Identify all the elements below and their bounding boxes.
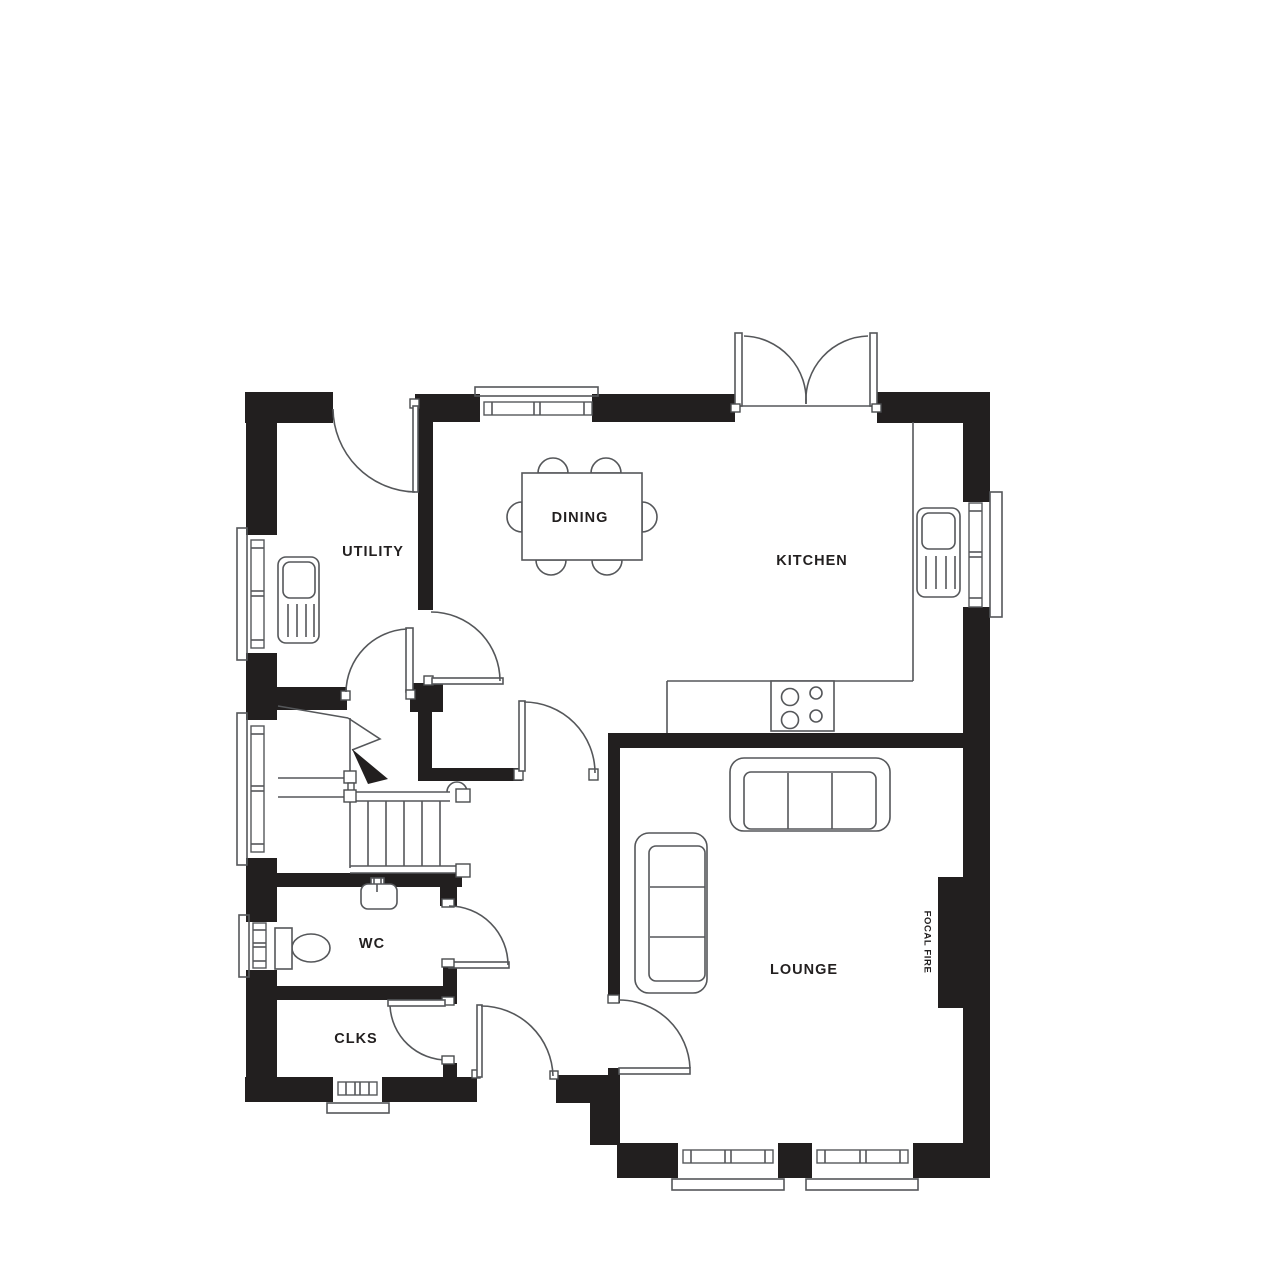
newel-post: [344, 771, 356, 783]
stair-direction-arrow: [352, 749, 388, 784]
wc-fixtures: [275, 878, 397, 969]
window-dining-top: [475, 387, 598, 415]
newel-post: [456, 864, 470, 877]
newel-post: [456, 789, 470, 802]
french-doors-kitchen: [731, 333, 881, 412]
room-label-wc: WC: [359, 936, 385, 952]
room-label-clks: CLKS: [334, 1031, 377, 1047]
floor-plan-drawing: UTILITY DINING KITCHEN WC CLKS LOUNGE FO…: [0, 0, 1280, 1280]
front-door: [472, 1005, 558, 1079]
floor-plan-page: UTILITY DINING KITCHEN WC CLKS LOUNGE FO…: [0, 0, 1280, 1280]
chair-icon: [591, 458, 621, 473]
chair-icon: [507, 502, 522, 532]
door-utility-hall: [341, 628, 415, 700]
sofa-left-icon: [635, 833, 707, 993]
door-clks: [388, 997, 454, 1064]
door-utility-external: [333, 399, 419, 492]
focal-fire-label: FOCAL FIRE: [921, 911, 932, 974]
window-clks-bottom: [327, 1082, 389, 1113]
window-utility-left: [237, 528, 264, 660]
room-label-kitchen: KITCHEN: [776, 553, 847, 569]
room-label-lounge: LOUNGE: [770, 962, 838, 978]
focal-fire-chimney-breast: [938, 877, 965, 1008]
window-lounge-bottom-left: [672, 1150, 784, 1190]
window-lounge-bottom-right: [806, 1150, 918, 1190]
door-hall-dining-west: [424, 612, 503, 685]
sofa-top-icon: [730, 758, 890, 831]
door-lounge: [608, 995, 690, 1074]
room-label-dining: DINING: [552, 510, 609, 526]
chair-icon: [642, 502, 657, 532]
utility-sink-icon: [278, 557, 319, 643]
window-wc-left: [239, 915, 266, 977]
chair-icon: [592, 560, 622, 575]
door-hall-kitchen: [514, 701, 598, 780]
kitchen-fixtures: [667, 422, 960, 733]
toilet-icon: [275, 928, 330, 969]
lounge-furniture: [635, 758, 890, 993]
newel-post: [344, 790, 356, 802]
staircase: [278, 706, 470, 877]
window-kitchen-right: [969, 492, 1002, 617]
kitchen-sink-icon: [917, 508, 960, 597]
window-stairs-left: [237, 713, 264, 865]
chair-icon: [536, 560, 566, 575]
hob-icon: [771, 681, 834, 731]
room-label-utility: UTILITY: [342, 544, 404, 560]
chair-icon: [538, 458, 568, 473]
door-wc: [442, 899, 509, 968]
